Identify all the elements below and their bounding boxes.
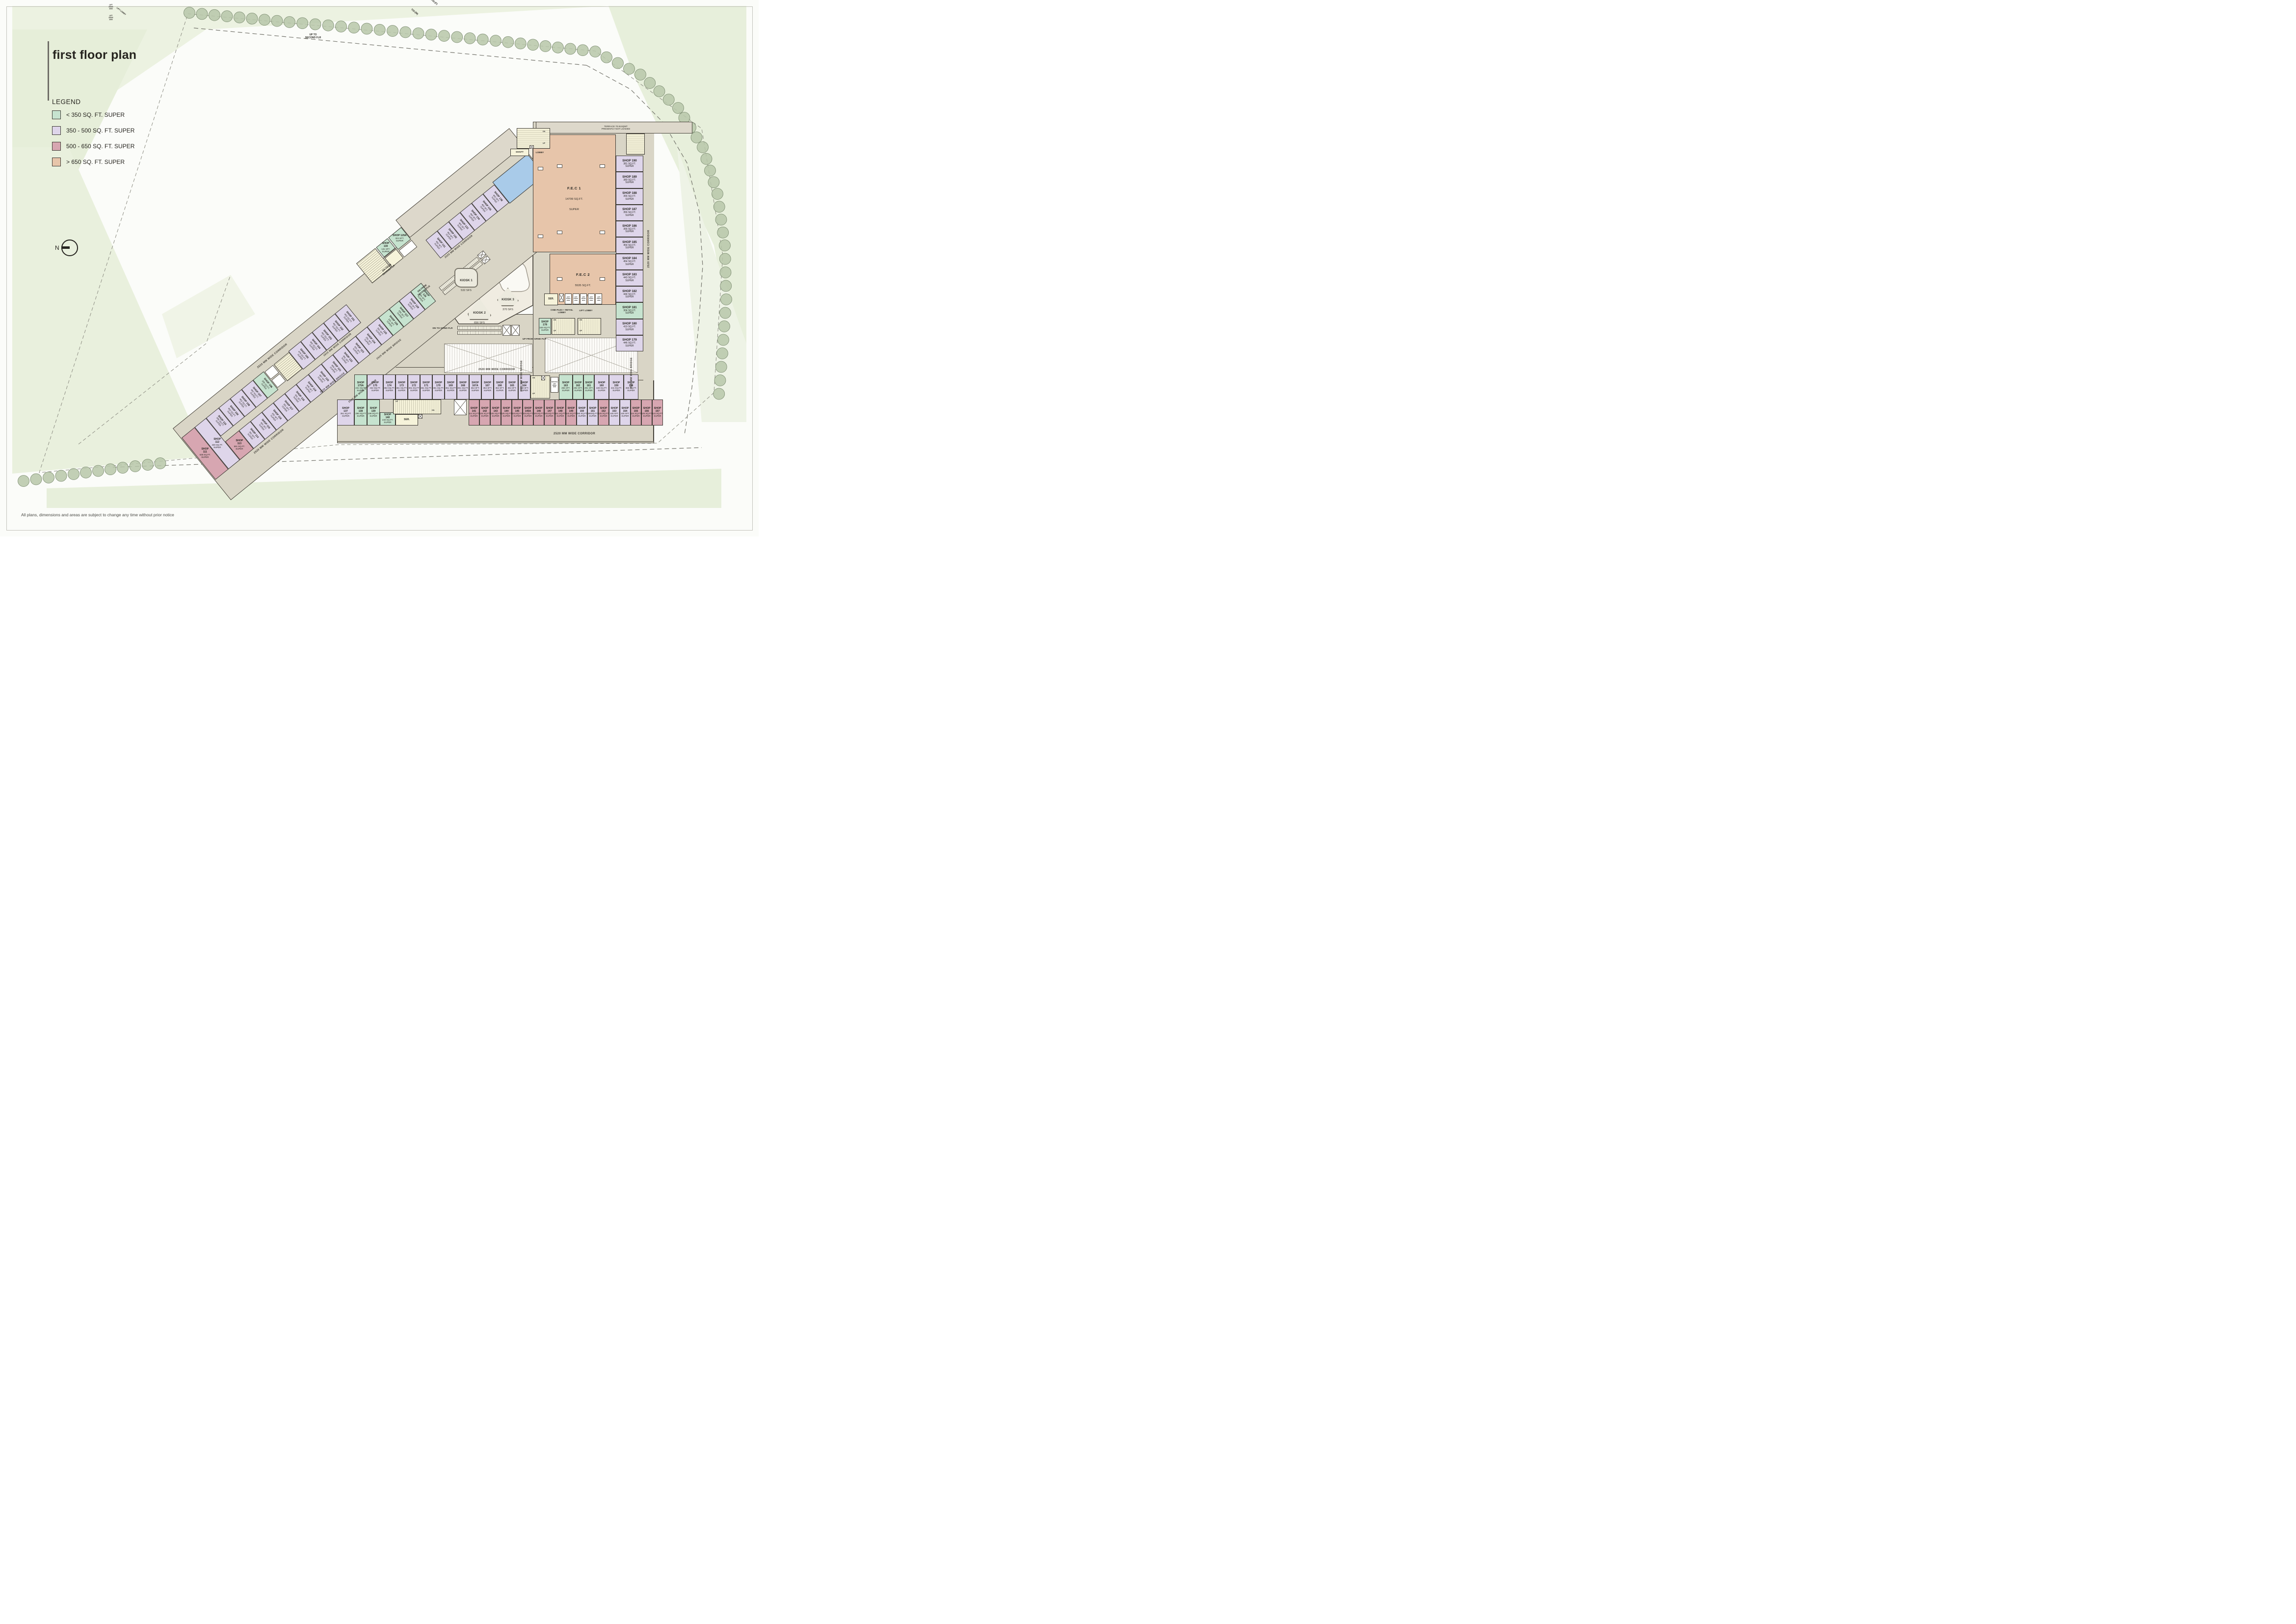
shop-cell: SHOP 186356 SQ.FT.SUPER	[616, 221, 643, 237]
shop-label: SHOP 141614 SQ.FT.SUPER	[469, 400, 479, 425]
shop-label: SHOP 174353 SQ.FT.SUPER	[384, 375, 395, 399]
kiosk-label: KIOSK 1532 SFS	[451, 274, 481, 284]
shop-cell: SHOP 153425 SFT.SUPER	[609, 399, 620, 426]
shop-cell: SHOP 185454 SQ.FT.SUPER	[616, 237, 643, 253]
shop-label: SHOP 172361 SQ.FTSUPER	[408, 375, 420, 399]
shop-label: SHOP 180419 SQ.FT.SUPER	[616, 319, 643, 335]
shop-cell: SHOP 142525 SQ.FT.SUPER	[479, 399, 490, 426]
shaft-box	[559, 293, 564, 302]
column-marker	[538, 235, 543, 238]
shop-label: SHOP 184454 SQ.FT.SUPER	[616, 254, 643, 269]
shop-cell: SHOP 154425 SFT.SUPER	[620, 399, 631, 426]
legend-swatch-500-650	[52, 142, 61, 151]
shop-cell: SHOP 184454 SQ.FT.SUPER	[616, 254, 643, 270]
shop-cell: SHOP 152525 SQ.FT.SUPER	[598, 399, 609, 426]
cineplex-lobby-label: CINE-PLEX + RETAIL LOBBY	[547, 307, 577, 316]
fec1-label: F.E.C 114799 SQ.FT.SUPER	[554, 183, 594, 200]
shop-label: SHOP 138299 SQ.FTSUPER	[355, 400, 367, 425]
disclaimer: All plans, dimensions and areas are subj…	[21, 512, 174, 517]
lift-size-label: LIFT 2500X 2000	[105, 15, 117, 22]
lobby-label: LOBBY	[530, 150, 550, 156]
lift-size-label: LIFT 2000X 2500	[595, 294, 602, 303]
lift-size-label: LIFT 2000X 2500	[565, 294, 572, 303]
shop-cell: SHOP 166364 SFT.SUPER	[494, 374, 506, 399]
shop-label: SHOP 160428 SQ.FT.SUPER	[595, 375, 608, 399]
kiosk-label: KIOSK 2656 SFS	[465, 307, 494, 317]
legend-swatch-gt650	[52, 158, 61, 166]
shop-cell: SHOP 159431 SQ.FT.SUPER	[609, 374, 624, 399]
shop-cell: SHOP 149543 SQ.FT.SUPER	[566, 399, 577, 426]
legend: LEGEND < 350 SQ. FT. SUPER 350 - 500 SQ.…	[52, 98, 134, 173]
shop-cell: SHOP 180419 SQ.FT.SUPER	[616, 319, 643, 335]
corridor-label: 2520 MM WIDE CORRIDOR	[645, 185, 652, 313]
dn: DN	[554, 319, 560, 323]
escalator-landing	[511, 325, 520, 336]
shop-label: SHOP 187356 SQ.FT.SUPER	[616, 205, 643, 220]
shop-cell: SHOP 163255 SFT.SUPER	[559, 374, 573, 399]
shop-label: SHOP 171361 SQ.FT.SUPER	[421, 375, 432, 399]
lift-size-label: LIFT 2000X 2500	[580, 294, 587, 303]
shop-cell: SHOP 172361 SQ.FTSUPER	[408, 374, 420, 399]
column-marker	[557, 277, 562, 281]
shop-cell: SHOP 160428 SQ.FT.SUPER	[594, 374, 609, 399]
shop-label: SHOP 186356 SQ.FT.SUPER	[616, 221, 643, 237]
service-lift-label: SERVICE LIFT 3000X 1800	[550, 378, 559, 392]
legend-item: > 650 SQ. FT. SUPER	[52, 158, 134, 166]
shop-label: SHOP 178349 SQ.FT.SUPER	[539, 319, 551, 334]
shop-cell: SHOP 151490SQ.FT.SUPER	[587, 399, 598, 426]
floor-plan-sheet: first floor plan LEGEND < 350 SQ. FT. SU…	[0, 0, 759, 536]
legend-item: < 350 SQ. FT. SUPER	[52, 110, 134, 119]
shop-cell: SHOP 167364 SFT.SUPER	[481, 374, 494, 399]
shop-label: SHOP 143525 SQ.FTSUPER	[491, 400, 501, 425]
shop-cell: SHOP 189380 SQ.FT.SUPER	[616, 172, 643, 188]
shop-cell: SHOP 171361 SQ.FT.SUPER	[420, 374, 432, 399]
shop-cell: SHOP 143525 SQ.FTSUPER	[490, 399, 501, 426]
shop-cell: SHOP 150490 SQ.FT.SUPER	[577, 399, 587, 426]
escalator	[457, 326, 501, 330]
shop-cell: SHOP 183443 SQ.FT.SUPER	[616, 270, 643, 286]
shop-label: SHOP 159431 SQ.FT.SUPER	[609, 375, 623, 399]
shop-label: SHOP 140240 SQ.FT.SUPER	[380, 413, 395, 425]
ser-label: SER.	[396, 417, 418, 423]
shop-cell: SHOP 165364 SFT.SUPER	[506, 374, 518, 399]
shop-label: SHOP 183443 SQ.FT.SUPER	[616, 270, 643, 286]
column-marker	[538, 167, 543, 170]
title-rule	[48, 41, 49, 101]
shop-cell: SHOP 187356 SQ.FT.SUPER	[616, 205, 643, 221]
shop-label: SHOP 170361 SQ.FT.SUPER	[433, 375, 444, 399]
north-arrow: N	[55, 240, 78, 256]
shop-label: SHOP 154425 SFT.SUPER	[620, 400, 630, 425]
shop-cell: SHOP 161291 SFT.SUPER	[583, 374, 594, 399]
up: UP	[554, 330, 560, 334]
shop-label: SHOP 152525 SQ.FT.SUPER	[599, 400, 608, 425]
shop-label: SHOP 182444 SQ.FT.SUPER	[616, 287, 643, 302]
shop-cell: SHOP 181304 SQ.FT.SUPER	[616, 302, 643, 319]
legend-item: 350 - 500 SQ. FT. SUPER	[52, 126, 134, 135]
fhc-box	[529, 145, 534, 149]
legend-swatch-lt350	[52, 110, 61, 119]
shaft-box	[454, 399, 467, 415]
column-marker	[600, 231, 605, 234]
up: UP	[543, 142, 550, 146]
shop-label: SHOP 139299 SQ.FT.SUPER	[368, 400, 379, 425]
shop-label: SHOP 173361 SQ.FT.SUPER	[396, 375, 407, 399]
shop-cell: SHOP 170361 SQ.FT.SUPER	[432, 374, 445, 399]
shop-label: SHOP 153425 SFT.SUPER	[609, 400, 619, 425]
up: UP	[580, 330, 586, 334]
shop-cell: SHOP 178349 SQ.FT.SUPER	[539, 318, 551, 335]
shop-label: SHOP 167A364 SFT.SUPER	[470, 375, 481, 399]
shop-cell: SHOP 141614 SQ.FT.SUPER	[469, 399, 479, 426]
corridor-label: 2520 MM WIDE CORRIDOR	[554, 432, 627, 438]
shop-cell: SHOP 173361 SQ.FT.SUPER	[396, 374, 408, 399]
lift-size-label: LIFT 2000X 2500	[573, 294, 580, 303]
bridge-label: 2520 MM WIDE BRIDGE	[520, 342, 559, 410]
shop-cell: SHOP 188356 SQ.FT.SUPER	[616, 188, 643, 205]
fec2-label: F.E.C 25535 SQ.FT.SUPER	[563, 269, 603, 287]
dn: DN	[580, 319, 586, 323]
shop-label: SHOP 181304 SQ.FT.SUPER	[616, 303, 643, 318]
shop-cell: SHOP 144525 SQ.FTSUPER	[501, 399, 512, 426]
fhc-box	[541, 375, 545, 380]
legend-swatch-350-500	[52, 126, 61, 135]
shop-label: SHOP 129A324 SFT.SUPER	[391, 231, 408, 246]
kiosk-label: KIOSK 3370 SFS	[493, 293, 523, 303]
legend-item: 500 - 650 SQ. FT. SUPER	[52, 142, 134, 151]
legend-heading: LEGEND	[52, 98, 134, 106]
corridor-label: 2520 MM WIDE CORRIDOR	[478, 368, 542, 374]
shop-label: SHOP 149543 SQ.FT.SUPER	[566, 400, 576, 425]
shop-label: SHOP 189380 SQ.FT.SUPER	[616, 172, 643, 187]
lift-size-label: LIFT 2000X 2500	[588, 294, 595, 303]
shop-cell: SHOP 140240 SQ.FT.SUPER	[380, 412, 396, 426]
shop-cell: SHOP 190381 SQ.FT.SUPER	[616, 156, 643, 172]
shop-cell: SHOP 139299 SQ.FT.SUPER	[367, 399, 380, 426]
dn: DN	[543, 131, 550, 134]
shaft-label: SHAFT	[510, 150, 529, 155]
shop-label: SHOP 161291 SFT.SUPER	[584, 375, 594, 399]
shop-cell: SHOP 138299 SQ.FTSUPER	[354, 399, 367, 426]
shop-label: SHOP 142525 SQ.FT.SUPER	[480, 400, 490, 425]
shop-label: SHOP 165364 SFT.SUPER	[506, 375, 518, 399]
up: UP	[532, 393, 539, 397]
shop-label: SHOP 151490SQ.FT.SUPER	[588, 400, 598, 425]
bridge-label: 2520 MM WIDE BRIDGE	[630, 339, 669, 407]
shop-label: SHOP 190381 SQ.FT.SUPER	[616, 156, 643, 171]
shop-cell: SHOP 168361 SQ.FT.SUPER	[457, 374, 469, 399]
up: UP	[396, 400, 402, 404]
shop-cell: SHOP 182444 SQ.FT.SUPER	[616, 286, 643, 302]
dn-to-grnd-label: DN TO GRND FLR	[429, 326, 456, 332]
shop-label: SHOP 166364 SFT.SUPER	[494, 375, 505, 399]
shop-label: SHOP 162292 SFT.SUPER	[573, 375, 583, 399]
shop-cell: SHOP 162292 SFT.SUPER	[573, 374, 583, 399]
shop-label: SHOP 150490 SQ.FT.SUPER	[577, 400, 587, 425]
shop-label: SHOP 144525 SQ.FTSUPER	[501, 400, 511, 425]
up-to-second-label: UP TO SECOND FLR	[293, 31, 333, 42]
lift-lobby-label: LIFT LOBBY	[577, 308, 595, 314]
column-marker	[557, 231, 562, 234]
north-pointer	[61, 246, 70, 249]
column-marker	[600, 277, 605, 281]
dn: DN	[432, 409, 439, 413]
ser-label: SER.	[544, 296, 558, 302]
up-from-grnd-label: UP FROM GRND FLR	[517, 337, 552, 343]
escalator-landing	[502, 325, 511, 336]
shop-cell: SHOP 167A364 SFT.SUPER	[469, 374, 481, 399]
shop-label: SHOP 185454 SQ.FT.SUPER	[616, 238, 643, 253]
dn: DN	[532, 377, 539, 381]
ne-stair	[626, 133, 645, 155]
north-circle	[61, 240, 78, 256]
shop-cell: SHOP 169361 SQ.FTSUPER	[445, 374, 457, 399]
column-marker	[600, 164, 605, 168]
escalator	[457, 331, 501, 335]
shop-label: SHOP 188356 SQ.FT.SUPER	[616, 189, 643, 204]
column-marker	[557, 164, 562, 168]
shop-label: SHOP 169361 SQ.FTSUPER	[445, 375, 456, 399]
fhc-box	[418, 414, 422, 419]
terrace-top-label: TERRACE 70.91SQMT PRESENTLY NOT LOADED	[569, 123, 662, 133]
shop-label: SHOP 168361 SQ.FT.SUPER	[457, 375, 469, 399]
shop-label: SHOP 163255 SFT.SUPER	[559, 375, 572, 399]
page-title: first floor plan	[53, 48, 136, 62]
shop-label: SHOP 167364 SFT.SUPER	[482, 375, 493, 399]
